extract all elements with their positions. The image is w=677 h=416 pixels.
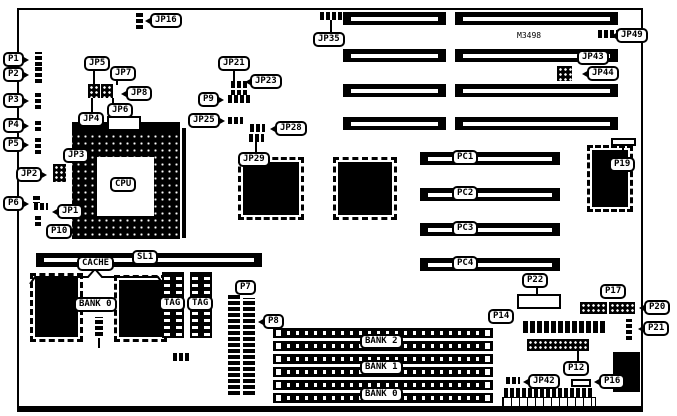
label-jp28: JP28 <box>275 121 307 136</box>
label-pc4: PC4 <box>452 256 478 271</box>
label-p20: P20 <box>644 300 670 315</box>
motherboard-diagram: M3498 <box>0 0 677 416</box>
label-p22: P22 <box>522 273 548 288</box>
label-p6: P6 <box>3 196 24 211</box>
label-p8: P8 <box>263 314 284 329</box>
label-p10: P10 <box>46 224 72 239</box>
jp28-connector <box>248 124 265 132</box>
p2-connector <box>35 67 42 85</box>
label-p14: P14 <box>488 309 514 324</box>
label-jp8: JP8 <box>126 86 152 101</box>
p22-connector <box>517 294 561 309</box>
chipset-chip-right <box>338 162 392 215</box>
cpu-top-component <box>107 116 141 131</box>
cpu-socket-side-bar <box>182 128 186 238</box>
label-jp42: JP42 <box>528 374 560 389</box>
p14-connector <box>521 321 607 333</box>
jp5-lead-line <box>93 69 95 84</box>
label-pc3: PC3 <box>452 221 478 236</box>
label-jp6: JP6 <box>107 103 133 118</box>
p12-header <box>527 339 589 351</box>
p9-connector <box>226 95 252 103</box>
cache-chip-left <box>35 278 78 337</box>
label-p9: P9 <box>198 92 219 107</box>
jp2-jp3-jumper-block <box>53 164 66 182</box>
label-jp44: JP44 <box>587 66 619 81</box>
label-p12: P12 <box>563 361 589 376</box>
p12-lead-line <box>577 351 579 361</box>
label-jp29: JP29 <box>238 152 270 167</box>
label-tag2: TAG <box>187 296 213 311</box>
isa-slot-1-short <box>343 12 446 25</box>
label-tag1: TAG <box>159 296 185 311</box>
label-p16: P16 <box>599 374 625 389</box>
isa-slot-4-long <box>455 117 618 130</box>
jp12-connector <box>95 317 103 338</box>
label-bank2: BANK 2 <box>360 334 403 349</box>
label-p2: P2 <box>3 67 24 82</box>
p3-connector <box>35 92 41 111</box>
label-pc1: PC1 <box>452 150 478 165</box>
label-jp49: JP49 <box>616 28 648 43</box>
pc1-slot <box>420 152 560 165</box>
p16-connector <box>571 379 591 387</box>
jp29-connector <box>247 134 264 142</box>
jp43-jp44-jumper-block <box>557 66 572 81</box>
p7-connector <box>228 294 240 397</box>
p19-lead-line <box>622 144 624 157</box>
label-jp43: JP43 <box>577 50 609 65</box>
jp6-jp7-jp8-jumper-block <box>101 84 113 98</box>
jp35-connector <box>318 12 344 20</box>
label-bank0-simm: BANK 0 <box>360 387 403 402</box>
label-sl1: SL1 <box>132 250 158 265</box>
label-bank0-cache: BANK 0 <box>74 297 117 312</box>
label-jp16: JP16 <box>150 13 182 28</box>
label-p4: P4 <box>3 118 24 133</box>
isa-slot-2-short <box>343 49 446 62</box>
pc4-slot <box>420 258 560 271</box>
label-jp35: JP35 <box>313 32 345 47</box>
label-jp21: JP21 <box>218 56 250 71</box>
power-connector-top-row <box>502 388 594 397</box>
label-p19: P19 <box>609 157 635 172</box>
label-jp2: JP2 <box>16 167 42 182</box>
label-jp4: JP4 <box>78 112 104 127</box>
p20-header <box>609 302 635 314</box>
chipset-chip-left <box>243 162 299 215</box>
label-p3: P3 <box>3 93 24 108</box>
jp25-connector <box>226 117 243 124</box>
label-jp7: JP7 <box>110 66 136 81</box>
isa-slot-1-long <box>455 12 618 25</box>
p21-connector <box>626 319 632 342</box>
p4-connector <box>35 119 41 133</box>
isa-slot-3-short <box>343 84 446 97</box>
cache-chip-right <box>119 280 162 337</box>
isa-slot-3-long <box>455 84 618 97</box>
label-jp23: JP23 <box>250 74 282 89</box>
label-pc2: PC2 <box>452 186 478 201</box>
label-p5: P5 <box>3 137 24 152</box>
p8-connector <box>243 298 255 397</box>
label-jp25: JP25 <box>188 113 220 128</box>
p5-connector <box>35 136 41 156</box>
label-jp5: JP5 <box>84 56 110 71</box>
power-connector-bottom-row <box>502 397 596 408</box>
jp42-connector <box>504 377 520 384</box>
jp20-connector <box>171 353 189 361</box>
label-jp1: JP1 <box>57 204 83 219</box>
label-bank1: BANK 1 <box>360 360 403 375</box>
jp12-lead-line <box>98 338 100 348</box>
label-p21: P21 <box>643 321 669 336</box>
label-jp3: JP3 <box>63 148 89 163</box>
label-p7: P7 <box>235 280 256 295</box>
chip-part-number: M3498 <box>517 31 541 40</box>
jp4-jp5-jumper-block <box>88 84 100 98</box>
p1-connector <box>35 52 42 68</box>
label-p17: P17 <box>600 284 626 299</box>
isa-slot-4-short <box>343 117 446 130</box>
p10-connector <box>35 215 41 228</box>
pc2-slot <box>420 188 560 201</box>
pc3-slot <box>420 223 560 236</box>
label-cpu: CPU <box>110 177 136 192</box>
label-cache: CACHE <box>77 256 114 271</box>
label-p1: P1 <box>3 52 24 67</box>
jp1-connector <box>32 203 48 210</box>
jp4-lead-line <box>91 98 93 112</box>
jp16-connector <box>136 11 143 31</box>
p17-header <box>580 302 607 314</box>
